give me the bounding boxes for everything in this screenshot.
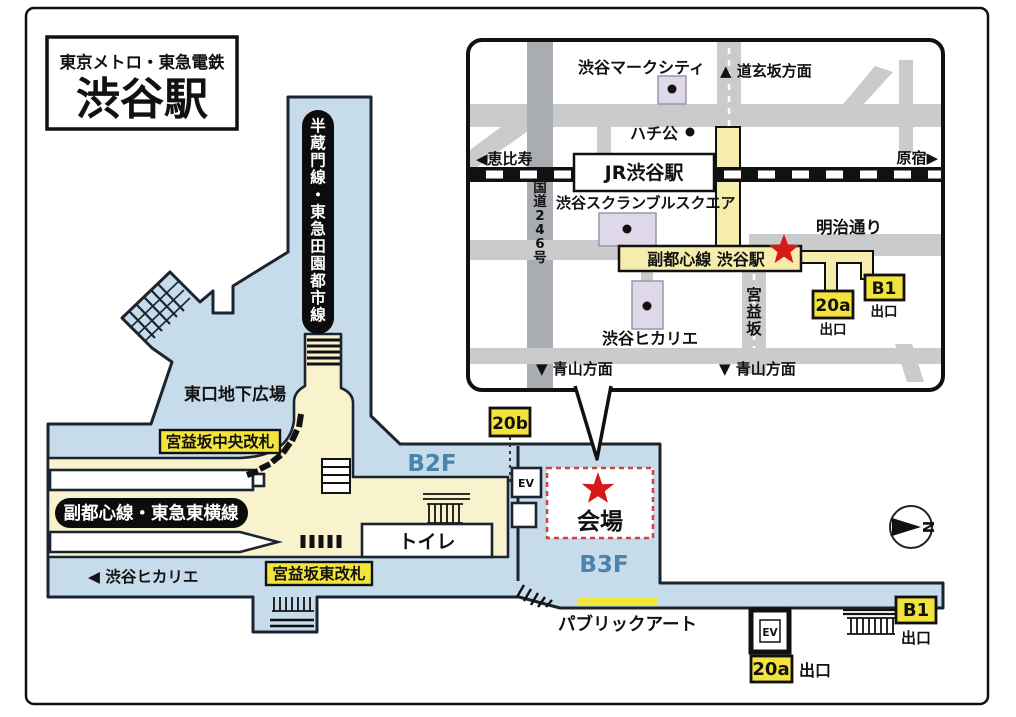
title-box: 東京メトロ・東急電鉄 渋谷駅 [47, 37, 237, 129]
harajuku-label: 原宿▶ [896, 149, 938, 167]
b3f-label: B3F [579, 552, 628, 578]
meiji-dori-label: 明治通り [816, 217, 882, 237]
central-gate-label: 宮益坂中央改札 [166, 432, 275, 451]
aoyama-right-label: ▼ 青山方面 [719, 360, 796, 378]
shibuya-station-map: トイレ 半蔵門線・東急田園都市線 副都心線・東急東横線 東口地下広場 B2F B… [0, 0, 1016, 717]
track-upper-tab [253, 474, 264, 486]
hachiko-label: ハチ公 [630, 124, 678, 143]
scramble-square-label: 渋谷スクランブルスクエア [556, 194, 736, 212]
scramble-square-dot-icon [623, 225, 632, 234]
road-station-connector [597, 124, 611, 156]
fukutoshin-corridor [716, 127, 740, 254]
miyamasuzaka-label: 宮益坂 [746, 285, 762, 338]
jr-station-label: JR渋谷駅 [603, 161, 685, 184]
inset-badge-b1-label: B1 [872, 279, 897, 299]
fukutoshin-toyoko-label: 副都心線・東急東横線 [64, 503, 239, 524]
title-operators: 東京メトロ・東急電鉄 [60, 52, 226, 72]
inset-exit-20a-label: 出口 [820, 321, 847, 338]
badge-20b-label: 20b [492, 414, 528, 434]
east-gate-label: 宮益坂東改札 [272, 564, 366, 583]
inset-map: JR渋谷駅 副都心線 渋谷駅 20a 出口 B1 出口 渋谷マークシティ ▲ 道… [468, 40, 943, 390]
hikarie-label: 渋谷ヒカリエ [602, 329, 698, 348]
ebisu-label: ◀恵比寿 [476, 150, 533, 168]
public-art-label: パブリックアート [558, 614, 697, 635]
toilet-label: トイレ [398, 531, 455, 553]
markcity-label: 渋谷マークシティ [578, 58, 705, 77]
badge-b1-label: B1 [903, 600, 929, 621]
badge-20a-label: 20a [752, 659, 789, 680]
elevator-upper-label: EV [518, 477, 535, 490]
elevator-lower-label: EV [762, 627, 778, 639]
compass-n-label: N [919, 521, 937, 534]
inset-exit-b1-label: 出口 [871, 303, 898, 320]
hikarie-dot-icon [643, 302, 652, 311]
track-upper [50, 470, 253, 490]
stairs-ladder-icon [322, 459, 350, 493]
public-art-strip [577, 597, 657, 606]
pillar-box [512, 503, 536, 527]
b2f-label: B2F [407, 451, 456, 477]
east-plaza-label: 東口地下広場 [184, 384, 286, 405]
road-right-vertical [899, 60, 913, 152]
inset-badge-20a-label: 20a [815, 296, 850, 316]
hikarie-direction-label: ◀ 渋谷ヒカリエ [88, 567, 198, 586]
aoyama-left-label: ▼ 青山方面 [536, 360, 613, 378]
markcity-dot-icon [668, 85, 677, 94]
title-station-name: 渋谷駅 [76, 74, 208, 125]
track-lower [50, 532, 278, 552]
dogenzaka-label: ▲ 道玄坂方面 [720, 62, 812, 80]
hanzomon-line-label: 半蔵門線・東急田園都市線 [309, 116, 326, 324]
exit-20a-label: 出口 [799, 661, 831, 680]
exit-b1-label: 出口 [901, 629, 931, 647]
fukutoshin-station-label: 副都心線 渋谷駅 [647, 250, 766, 269]
venue-label: 会場 [577, 508, 623, 535]
hachiko-dot-icon [686, 128, 695, 137]
